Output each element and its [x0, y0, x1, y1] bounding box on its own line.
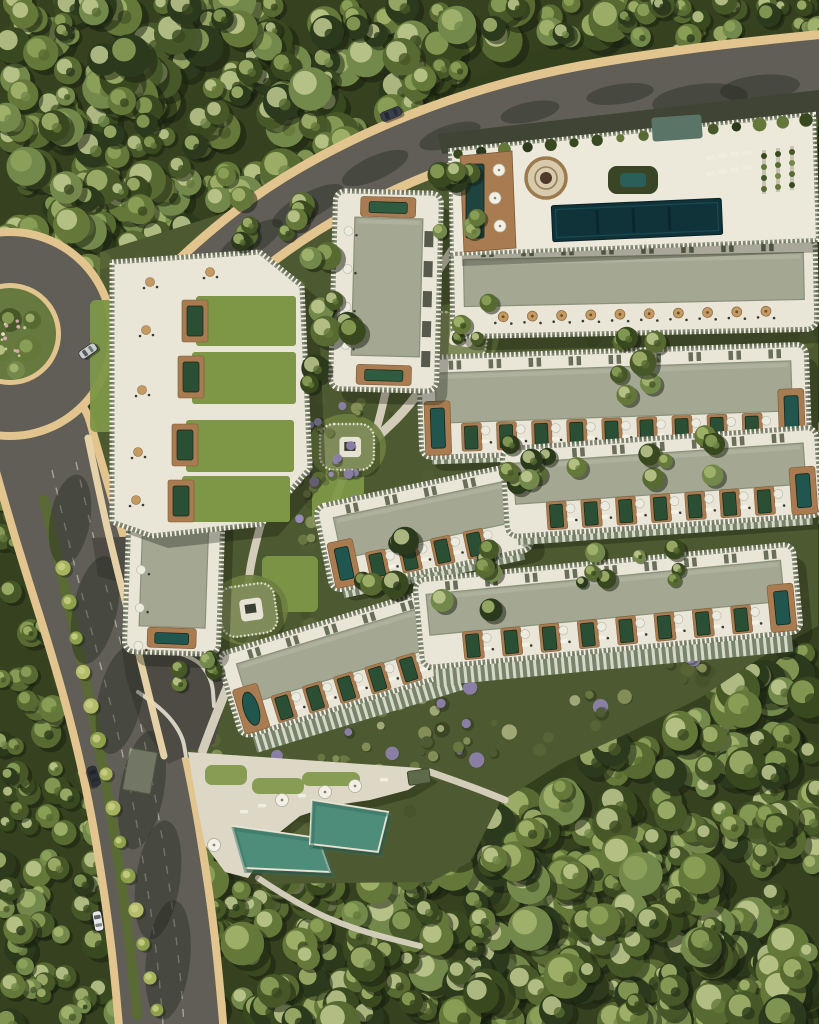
- plunge-pool: [618, 499, 633, 523]
- lounger: [718, 169, 727, 174]
- parasol: [206, 268, 215, 277]
- parasol: [142, 326, 151, 335]
- parasol: [132, 496, 141, 505]
- lounger: [240, 810, 248, 814]
- cabana: [407, 769, 431, 786]
- plunge-pool: [657, 615, 672, 639]
- plunge-pool: [695, 611, 710, 635]
- plunge-pool: [173, 486, 189, 516]
- pavilion-roof: [651, 114, 703, 141]
- private-lawn: [196, 296, 296, 346]
- plunge-pool: [619, 619, 634, 643]
- plunge-pool: [183, 362, 199, 392]
- parasol: [138, 386, 147, 395]
- lounger: [718, 153, 727, 158]
- building-cluster-west: [112, 252, 326, 548]
- plunge-pool: [542, 626, 557, 650]
- lounger: [742, 165, 751, 170]
- plunge-pool: [584, 502, 599, 526]
- parasol: [146, 278, 155, 287]
- plunge-pool: [722, 492, 737, 516]
- private-lawn: [186, 420, 294, 472]
- plunge-pool: [757, 489, 772, 513]
- plunge-pool: [365, 369, 403, 381]
- lounger: [706, 155, 715, 160]
- plunge-pool: [464, 426, 478, 449]
- plunge-pool: [535, 423, 549, 446]
- plunge-pool: [549, 504, 564, 528]
- plunge-pool: [688, 494, 703, 518]
- site-plan-canvas: [0, 0, 819, 1024]
- lounger: [258, 804, 266, 808]
- private-lawn: [182, 476, 290, 522]
- lounger: [298, 794, 306, 798]
- plunge-pool: [465, 634, 480, 658]
- lounger: [380, 778, 388, 782]
- lounger: [730, 151, 739, 156]
- plunge-pool: [734, 608, 749, 632]
- plunge-pool: [653, 497, 668, 521]
- plunge-pool: [773, 590, 790, 625]
- aerial-site-render: [0, 0, 819, 1024]
- plunge-pool: [155, 632, 189, 644]
- plunge-pool: [580, 622, 595, 646]
- private-lawn: [192, 352, 296, 404]
- lap-pool: [551, 198, 722, 241]
- plunge-pool: [430, 408, 445, 448]
- plunge-pool: [369, 202, 407, 214]
- plunge-pool: [187, 306, 203, 336]
- plunge-pool: [177, 430, 193, 460]
- building-v1: [330, 191, 453, 406]
- plunge-pool: [504, 630, 519, 654]
- plunge-pool: [795, 473, 811, 507]
- lounger: [742, 150, 751, 155]
- spa-pool: [620, 173, 646, 187]
- lounger: [706, 171, 715, 176]
- parasol: [134, 448, 143, 457]
- lounger: [730, 167, 739, 172]
